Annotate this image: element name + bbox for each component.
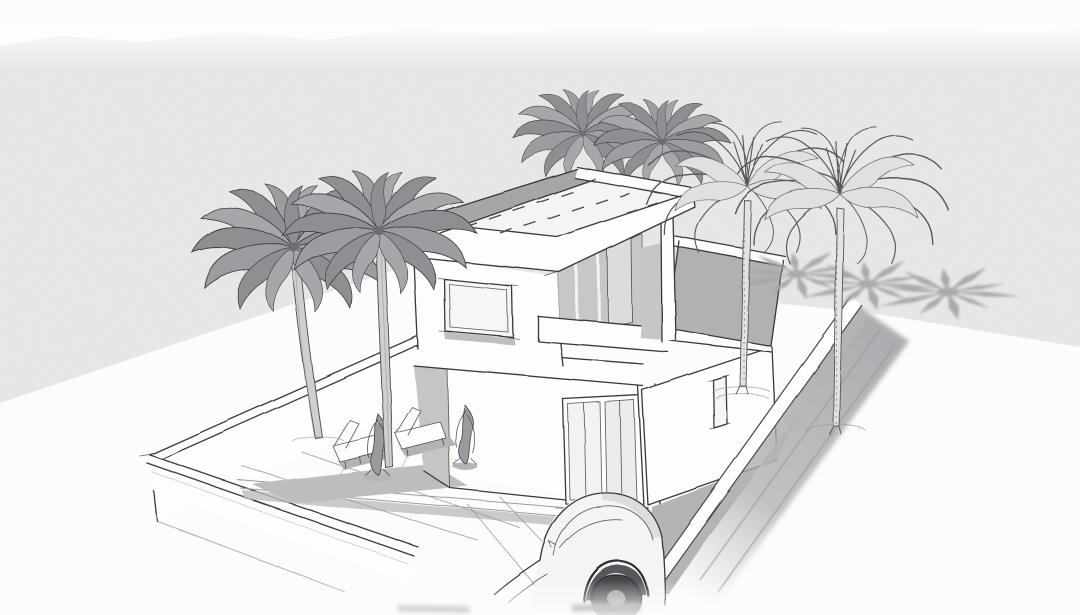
- sketch-canvas: Architectural concept sketch of a modern…: [0, 0, 1080, 615]
- bottom-fade: [0, 580, 1080, 615]
- torn-edge-fade: [0, 24, 1080, 70]
- architectural-sketch: Architectural concept sketch of a modern…: [0, 0, 1080, 615]
- terrace-inset-shade: [640, 243, 663, 340]
